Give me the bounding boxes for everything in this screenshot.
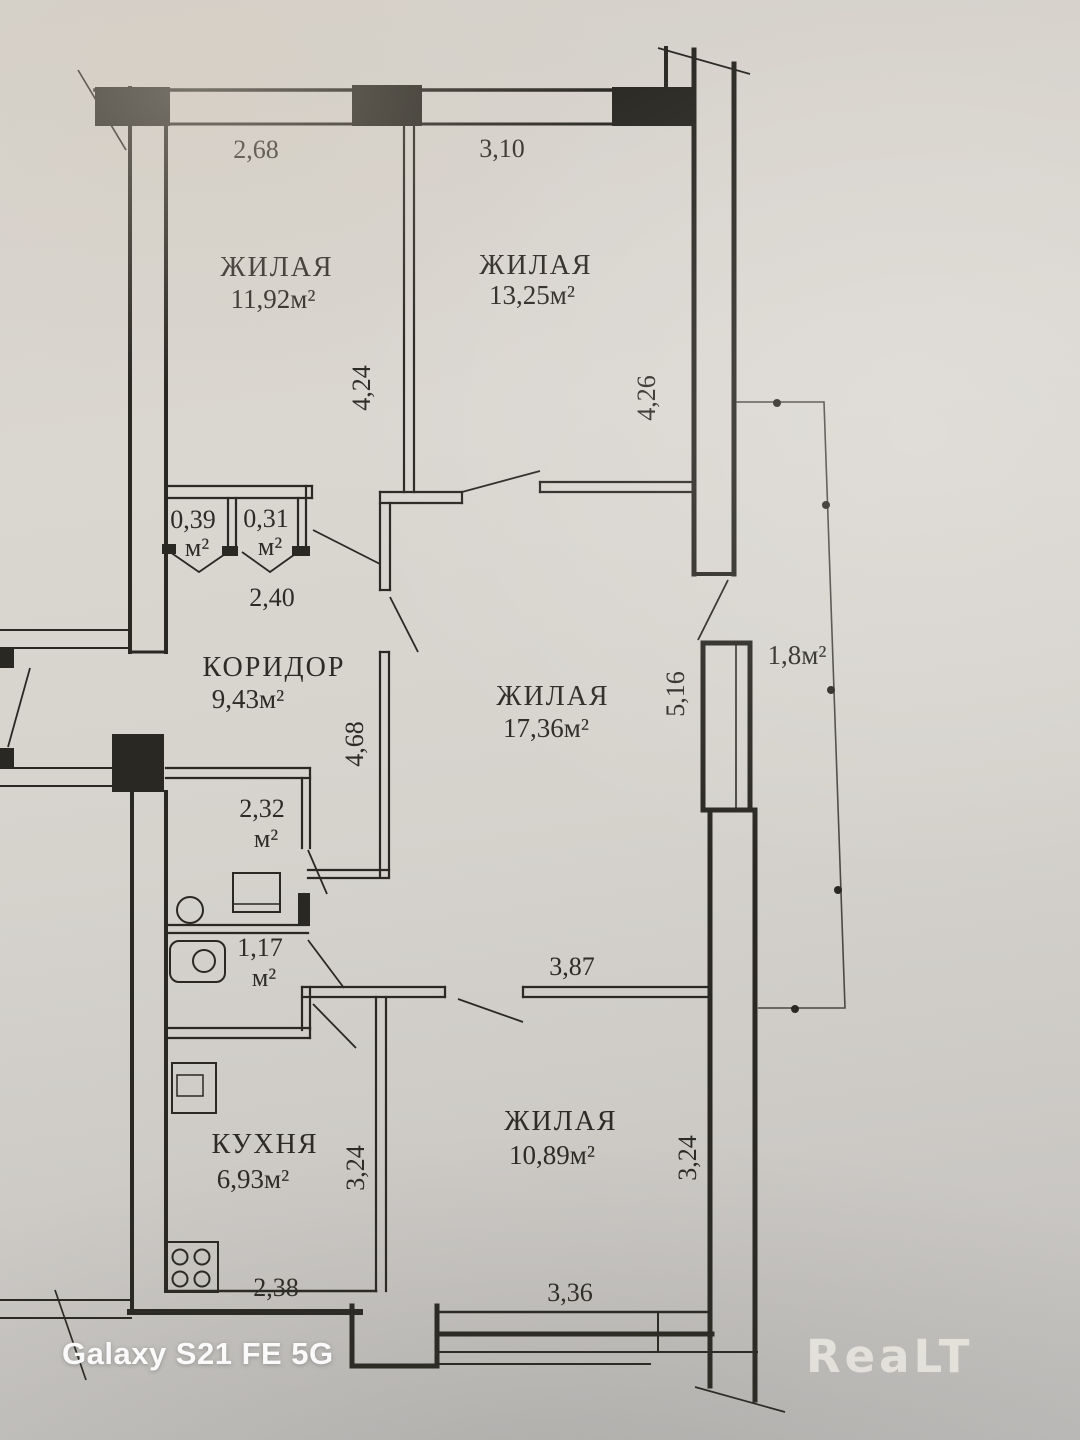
closet1-area: 0,39: [170, 505, 216, 534]
toilet-icon: [170, 941, 225, 982]
device-watermark: Galaxy S21 FE 5G: [62, 1336, 334, 1372]
living2-area: 13,25м²: [489, 280, 575, 310]
dim-room4-height: 3,24: [673, 1135, 702, 1181]
kitchen-area: 6,93м²: [217, 1164, 289, 1194]
closet1-unit: м²: [185, 533, 209, 562]
kitchen-name: КУХНЯ: [211, 1129, 318, 1160]
exterior-walls: [0, 48, 757, 1400]
dim-room1-height: 4,24: [347, 365, 376, 411]
wc-area: 1,17: [237, 933, 283, 962]
dim-hall-height: 5,16: [661, 671, 690, 717]
dim-corridor-width: 2,40: [249, 583, 295, 612]
dim-room1-width: 2,68: [233, 135, 279, 164]
dim-kitchen-height: 3,24: [341, 1145, 370, 1191]
dim-room4-width: 3,36: [547, 1278, 593, 1307]
wc-unit: м²: [252, 963, 276, 992]
living2-name: ЖИЛАЯ: [479, 250, 592, 281]
floor-plan-svg: ЖИЛАЯ 11,92м² ЖИЛАЯ 13,25м² ЖИЛАЯ 17,36м…: [0, 0, 1080, 1440]
dim-room2-height: 4,26: [632, 375, 661, 421]
corridor-name: КОРИДОР: [203, 652, 346, 683]
balcony-area: 1,8м²: [768, 640, 827, 670]
dim-hall-width: 3,87: [549, 952, 595, 981]
living3-name: ЖИЛАЯ: [496, 681, 609, 712]
fridge-icon: [172, 1063, 216, 1113]
living4-area: 10,89м²: [509, 1140, 595, 1170]
living4-name: ЖИЛАЯ: [504, 1106, 617, 1137]
sink-icon: [177, 897, 203, 923]
bathroom-unit: м²: [254, 824, 278, 853]
closet2-area: 0,31: [243, 504, 289, 533]
living3-area: 17,36м²: [503, 713, 589, 743]
corridor-area: 9,43м²: [212, 684, 284, 714]
dim-kitchen-width: 2,38: [253, 1273, 299, 1302]
living1-area: 11,92м²: [231, 284, 316, 314]
stove-icon: [166, 1242, 218, 1292]
washing-machine-icon: [233, 873, 280, 912]
dim-corridor-height: 4,68: [340, 721, 369, 767]
living1-name: ЖИЛАЯ: [220, 252, 333, 283]
bathroom-area: 2,32: [239, 794, 285, 823]
realt-brand-watermark: ReaLT: [806, 1330, 973, 1383]
closet2-unit: м²: [258, 532, 282, 561]
floor-plan-photo: ЖИЛАЯ 11,92м² ЖИЛАЯ 13,25м² ЖИЛАЯ 17,36м…: [0, 0, 1080, 1440]
dim-room2-width: 3,10: [479, 134, 525, 163]
room-labels: ЖИЛАЯ 11,92м² ЖИЛАЯ 13,25м² ЖИЛАЯ 17,36м…: [170, 250, 826, 1194]
